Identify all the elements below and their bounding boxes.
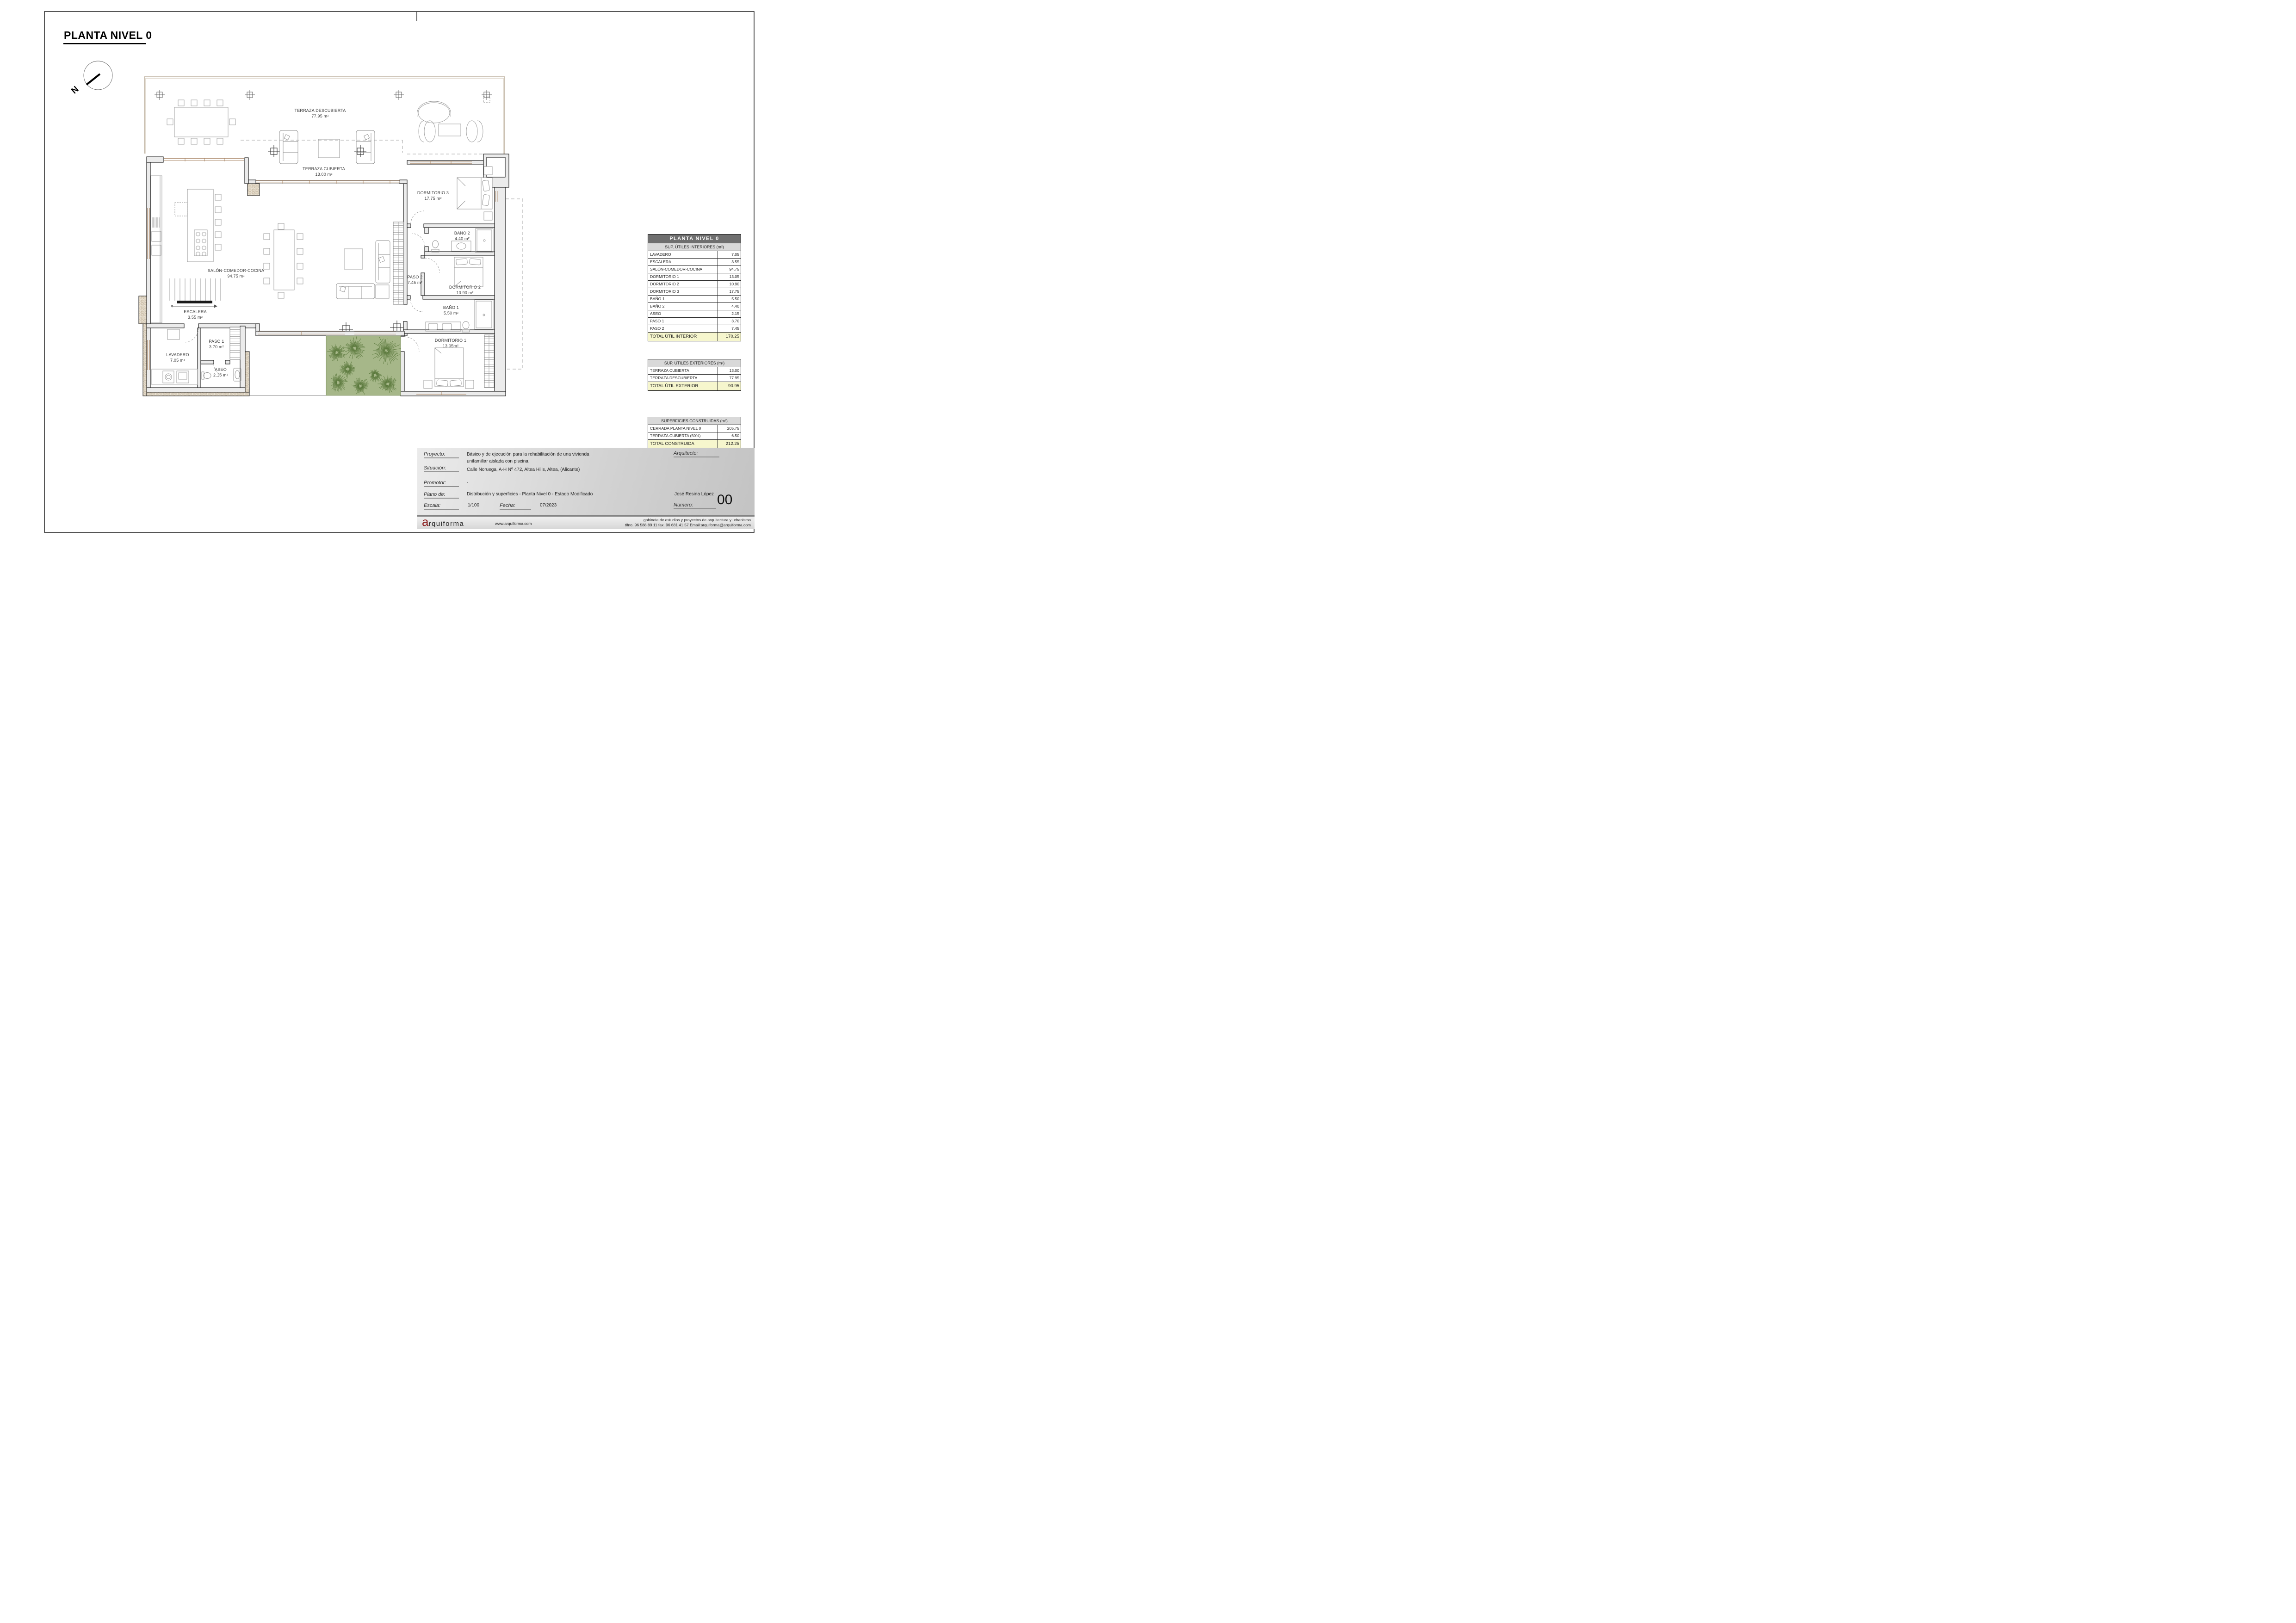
page-title: PLANTA NIVEL 0 [63,29,152,44]
room-label: PASO 2 [407,275,422,279]
row-value: 13.05 [718,273,741,280]
table-row: BAÑO 24.40 [648,303,741,310]
room-label: SALÓN-COMEDOR-COCINA [208,268,265,273]
row-value: 7.45 [718,325,741,332]
row-value: 10.90 [718,281,741,288]
arquitecto-name: José Resina López [675,492,714,497]
row-label: PASO 2 [648,325,718,332]
covered-terrace-columns [268,145,404,336]
proyecto-label: Proyecto: [424,451,459,458]
table-row: TERRAZA DESCUBIERTA77.95 [648,375,741,382]
room-area: 77.95 m² [311,114,328,118]
logo-a-icon: a [422,515,428,529]
total-label: TOTAL ÚTIL EXTERIOR [648,382,718,390]
row-label: CERRADA PLANTA NIVEL 0 [648,425,718,432]
row-value: 4.40 [718,303,741,310]
row-value: 2.15 [718,310,741,317]
table-row: DORMITORIO 210.90 [648,281,741,288]
table-row: PASO 13.70 [648,318,741,325]
room-label: ESCALERA [184,309,207,314]
dorm3-furniture [457,167,492,220]
room-label: TERRAZA DESCUBIERTA [295,108,346,113]
table-total-row: TOTAL ÚTIL INTERIOR170.25 [648,333,741,341]
staircase [170,278,221,308]
table-subheader: SUP. ÚTILES INTERIORES (m²) [648,243,741,251]
row-value: 77.95 [718,375,741,382]
room-area: 2.15 m² [213,373,228,377]
total-value: 170.25 [718,333,741,341]
room-area: 4.40 m² [455,236,470,241]
row-label: ESCALERA [648,259,718,265]
table-row: PASO 27.45 [648,325,741,333]
table-row: LAVADERO7.05 [648,251,741,259]
row-label: DORMITORIO 2 [648,281,718,288]
room-area: 94.75 m² [227,274,244,278]
room-area: 10.90 m² [456,290,473,295]
proyecto-value-line1: Básico y de ejecución para la rehabilita… [467,452,589,457]
table-row: TERRAZA CUBIERTA13.00 [648,367,741,375]
table-subheader: SUP. ÚTILES EXTERIORES (m²) [648,359,741,367]
room-label: PASO 1 [209,339,224,344]
room-label: DORMITORIO 2 [449,285,481,290]
room-label: BAÑO 1 [443,305,459,310]
sheet-number: 00 [717,492,732,508]
arquiforma-logo: arquiforma [422,515,464,529]
table-row: DORMITORIO 317.75 [648,288,741,296]
table-row: SALÓN-COMEDOR-COCINA94.75 [648,266,741,273]
row-label: TERRAZA CUBIERTA [648,367,718,374]
room-area: 7.05 m² [170,358,185,363]
row-value: 3.55 [718,259,741,265]
room-area: 13.00 m² [315,172,332,177]
total-label: TOTAL CONSTRUIDA [648,440,718,448]
titleblock-footer: arquiforma www.arquiforma.com gabinete d… [417,517,755,529]
terrace-lounge-set [417,101,483,142]
row-label: LAVADERO [648,251,718,258]
page-title-text: PLANTA NIVEL 0 [64,29,152,41]
row-label: PASO 1 [648,318,718,325]
north-label: N [69,84,80,96]
proyecto-value-line2: unifamiliar aislada con piscina. [467,459,530,464]
room-label: DORMITORIO 1 [435,338,466,343]
arquitecto-label: Arquitecto: [674,450,719,457]
table-total-row: TOTAL CONSTRUIDA212.25 [648,440,741,448]
plano-de-label: Plano de: [424,492,459,499]
row-value: 6.50 [718,432,741,439]
row-label: BAÑO 2 [648,303,718,310]
table-sup-utiles-exteriores: SUP. ÚTILES EXTERIORES (m²) TERRAZA CUBI… [648,359,741,391]
row-label: ASEO [648,310,718,317]
row-value: 3.70 [718,318,741,325]
footer-contact: tlfno. 96 588 89 11 fax. 96 681 41 57 Em… [625,523,751,528]
table-superficies-construidas: SUPERFICIES CONSTRUIDAS (m²) CERRADA PLA… [648,417,741,449]
footer-contact-block: gabinete de estudios y proyectos de arqu… [625,518,751,528]
row-value: 94.75 [718,266,741,273]
total-value: 90.95 [718,382,741,390]
plano-de-value: Distribución y superficies - Planta Nive… [467,492,593,497]
dorm2-furniture [454,257,483,287]
table-row: TERRAZA CUBIERTA (50%)6.50 [648,432,741,440]
promotor-label: Promotor: [424,480,459,487]
living-sofas [336,241,390,299]
escala-value: 1/100 [468,503,479,508]
numero-label: Número: [674,502,716,509]
title-underline [63,43,146,44]
room-label: BAÑO 2 [454,231,470,235]
room-area: 7.45 m² [408,280,422,285]
escala-label: Escala: [424,503,459,510]
total-label: TOTAL ÚTIL INTERIOR [648,333,718,341]
row-label: SALÓN-COMEDOR-COCINA [648,266,718,273]
dining-set [264,223,303,298]
room-area: 3.55 m² [188,315,203,320]
fecha-label: Fecha: [500,503,531,510]
table-row: BAÑO 15.50 [648,296,741,303]
title-block: Proyecto: Básico y de ejecución para la … [417,448,755,529]
row-value: 7.05 [718,251,741,258]
row-value: 205.75 [718,425,741,432]
table-row: ASEO2.15 [648,310,741,318]
terrace-dining-set [167,100,235,144]
north-arrow-icon: N [69,61,112,96]
bath1-fixtures [426,300,493,332]
fecha-value: 07/2023 [540,503,557,508]
table-row: ESCALERA3.55 [648,259,741,266]
row-label: TERRAZA DESCUBIERTA [648,375,718,382]
table-header: PLANTA NIVEL 0 [648,235,741,243]
situacion-value: Calle Noruega, A-H Nº 472, Altea Hills, … [467,467,580,472]
row-label: DORMITORIO 3 [648,288,718,295]
garden [326,336,402,395]
terrace-columns [155,90,492,103]
total-value: 212.25 [718,440,741,448]
room-label: TERRAZA CUBIERTA [303,167,345,171]
row-value: 17.75 [718,288,741,295]
room-area: 13.05m² [443,344,458,348]
room-label: LAVADERO [166,352,189,357]
table-total-row: TOTAL ÚTIL EXTERIOR90.95 [648,382,741,390]
room-area: 5.50 m² [444,311,458,315]
table-row: DORMITORIO 113.05 [648,273,741,281]
room-area: 3.70 m² [209,345,224,349]
table-sup-utiles-interiores: PLANTA NIVEL 0 SUP. ÚTILES INTERIORES (m… [648,234,741,341]
room-label: DORMITORIO 3 [417,191,449,195]
floor-plan: TERRAZA DESCUBIERTA 77.95 m² TERRAZA CUB… [139,77,523,396]
row-value: 13.00 [718,367,741,374]
promotor-value: - [467,480,468,485]
row-value: 5.50 [718,296,741,302]
room-label: ASEO [215,367,227,372]
situacion-label: Situación: [424,465,459,472]
footer-tagline: gabinete de estudios y proyectos de arqu… [625,518,751,523]
website-text: www.arquiforma.com [495,521,532,526]
table-row: CERRADA PLANTA NIVEL 0205.75 [648,425,741,432]
row-label: DORMITORIO 1 [648,273,718,280]
lavadero-fixtures [152,329,198,385]
row-label: TERRAZA CUBIERTA (50%) [648,432,718,439]
drawing-sheet: PLANTA NIVEL 0 N [0,0,765,541]
row-label: BAÑO 1 [648,296,718,302]
room-area: 17.75 m² [424,196,441,201]
dorm1-furniture [424,348,474,389]
logo-text: rquiforma [428,520,464,528]
table-subheader: SUPERFICIES CONSTRUIDAS (m²) [648,417,741,425]
